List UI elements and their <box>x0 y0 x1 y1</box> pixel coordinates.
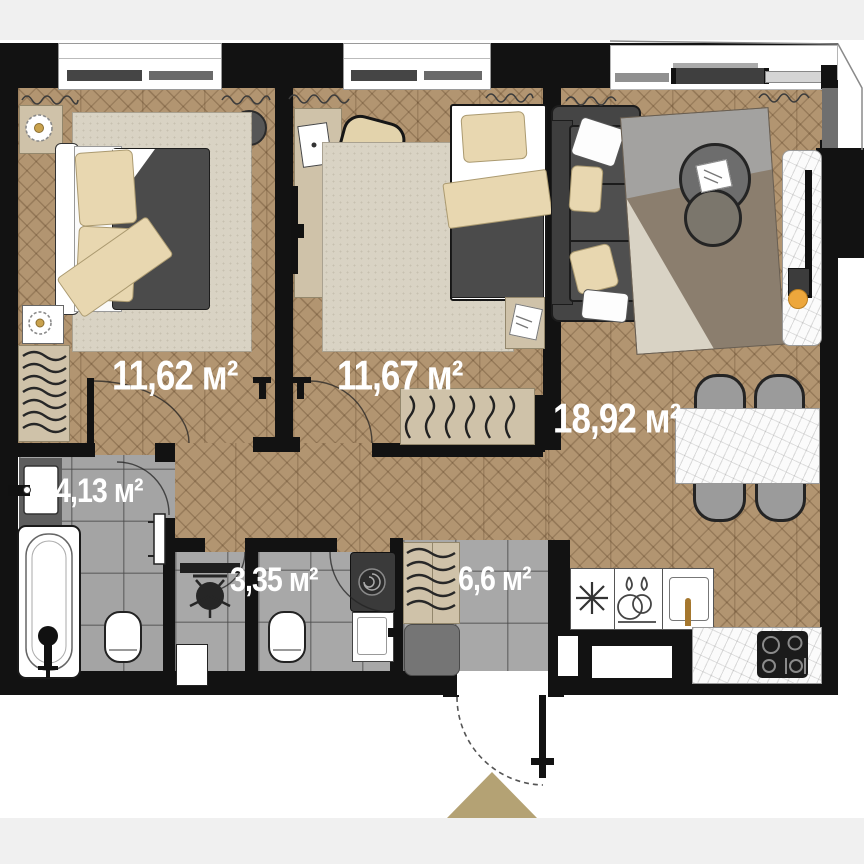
wall-niche-2 <box>592 646 672 678</box>
wall-kitchen-west <box>548 540 570 630</box>
wall-divider-foot <box>253 437 300 452</box>
cooktop-icon <box>757 631 808 678</box>
wall-column-top-right <box>816 148 864 258</box>
wall-bathroom-north <box>15 443 95 457</box>
door-handle-icon <box>531 758 554 765</box>
dishwasher-icon <box>614 568 664 630</box>
entrance-arrow-icon <box>447 772 537 818</box>
room-label-bedroom-1: 11,62 м² <box>112 353 237 400</box>
entrance-door-swing <box>457 697 543 785</box>
pillow-icon <box>460 111 527 163</box>
background-band-top <box>0 0 864 40</box>
entrance-door-leaf <box>539 695 546 778</box>
entrance-jamb-right <box>548 683 564 697</box>
window-side-cap-bottom <box>822 148 838 156</box>
wall-bathroom-corner <box>155 443 175 462</box>
window-side-cap-top <box>822 80 838 88</box>
fridge-icon <box>570 568 616 630</box>
wall-bottom-left <box>0 671 457 695</box>
pillow-icon <box>581 289 630 324</box>
tv-wall-marble <box>782 150 822 346</box>
room-label-living-kitchen: 18,92 м² <box>553 396 680 443</box>
room-label-bedroom-2: 11,67 м² <box>337 353 462 400</box>
wall-niche-shower <box>176 644 208 686</box>
floor-plan: 11,62 м² 11,67 м² 18,92 м² 4,13 м² 3,35 … <box>0 0 864 864</box>
entry-wardrobe-icon <box>403 542 460 624</box>
dining-table-icon <box>675 408 820 484</box>
room-label-hallway: 6,6 м² <box>458 559 531 599</box>
tv-mount <box>296 224 304 238</box>
pillow-icon <box>74 149 137 227</box>
doormat-icon <box>404 624 460 676</box>
room-label-bathroom: 4,13 м² <box>55 471 143 511</box>
wall-bedroom-2-south <box>372 443 543 457</box>
wall-nook-north <box>163 538 205 552</box>
room-label-wc-laundry: 3,35 м² <box>230 560 318 600</box>
wall-niche-1 <box>558 636 578 676</box>
bathroom-sink-icon <box>352 612 394 662</box>
entrance-opening <box>457 671 548 695</box>
kitchen-sink-icon <box>662 568 714 630</box>
wall-wc-north <box>245 538 337 552</box>
wardrobe-icon <box>18 345 70 442</box>
window-living-glazing <box>610 45 838 90</box>
nightstand-icon <box>22 305 64 344</box>
window-living-side <box>822 84 838 152</box>
coffee-table-icon <box>684 189 742 247</box>
background-band-bottom <box>0 818 864 864</box>
hallway-floor <box>173 443 548 552</box>
wall-wc-west <box>245 538 258 675</box>
window-bedroom-1 <box>58 43 222 90</box>
washing-machine-icon <box>350 552 396 612</box>
wall-left <box>0 43 18 695</box>
window-bedroom-2 <box>343 43 491 90</box>
pillow-icon <box>568 165 603 213</box>
speaker-icon <box>788 289 808 309</box>
